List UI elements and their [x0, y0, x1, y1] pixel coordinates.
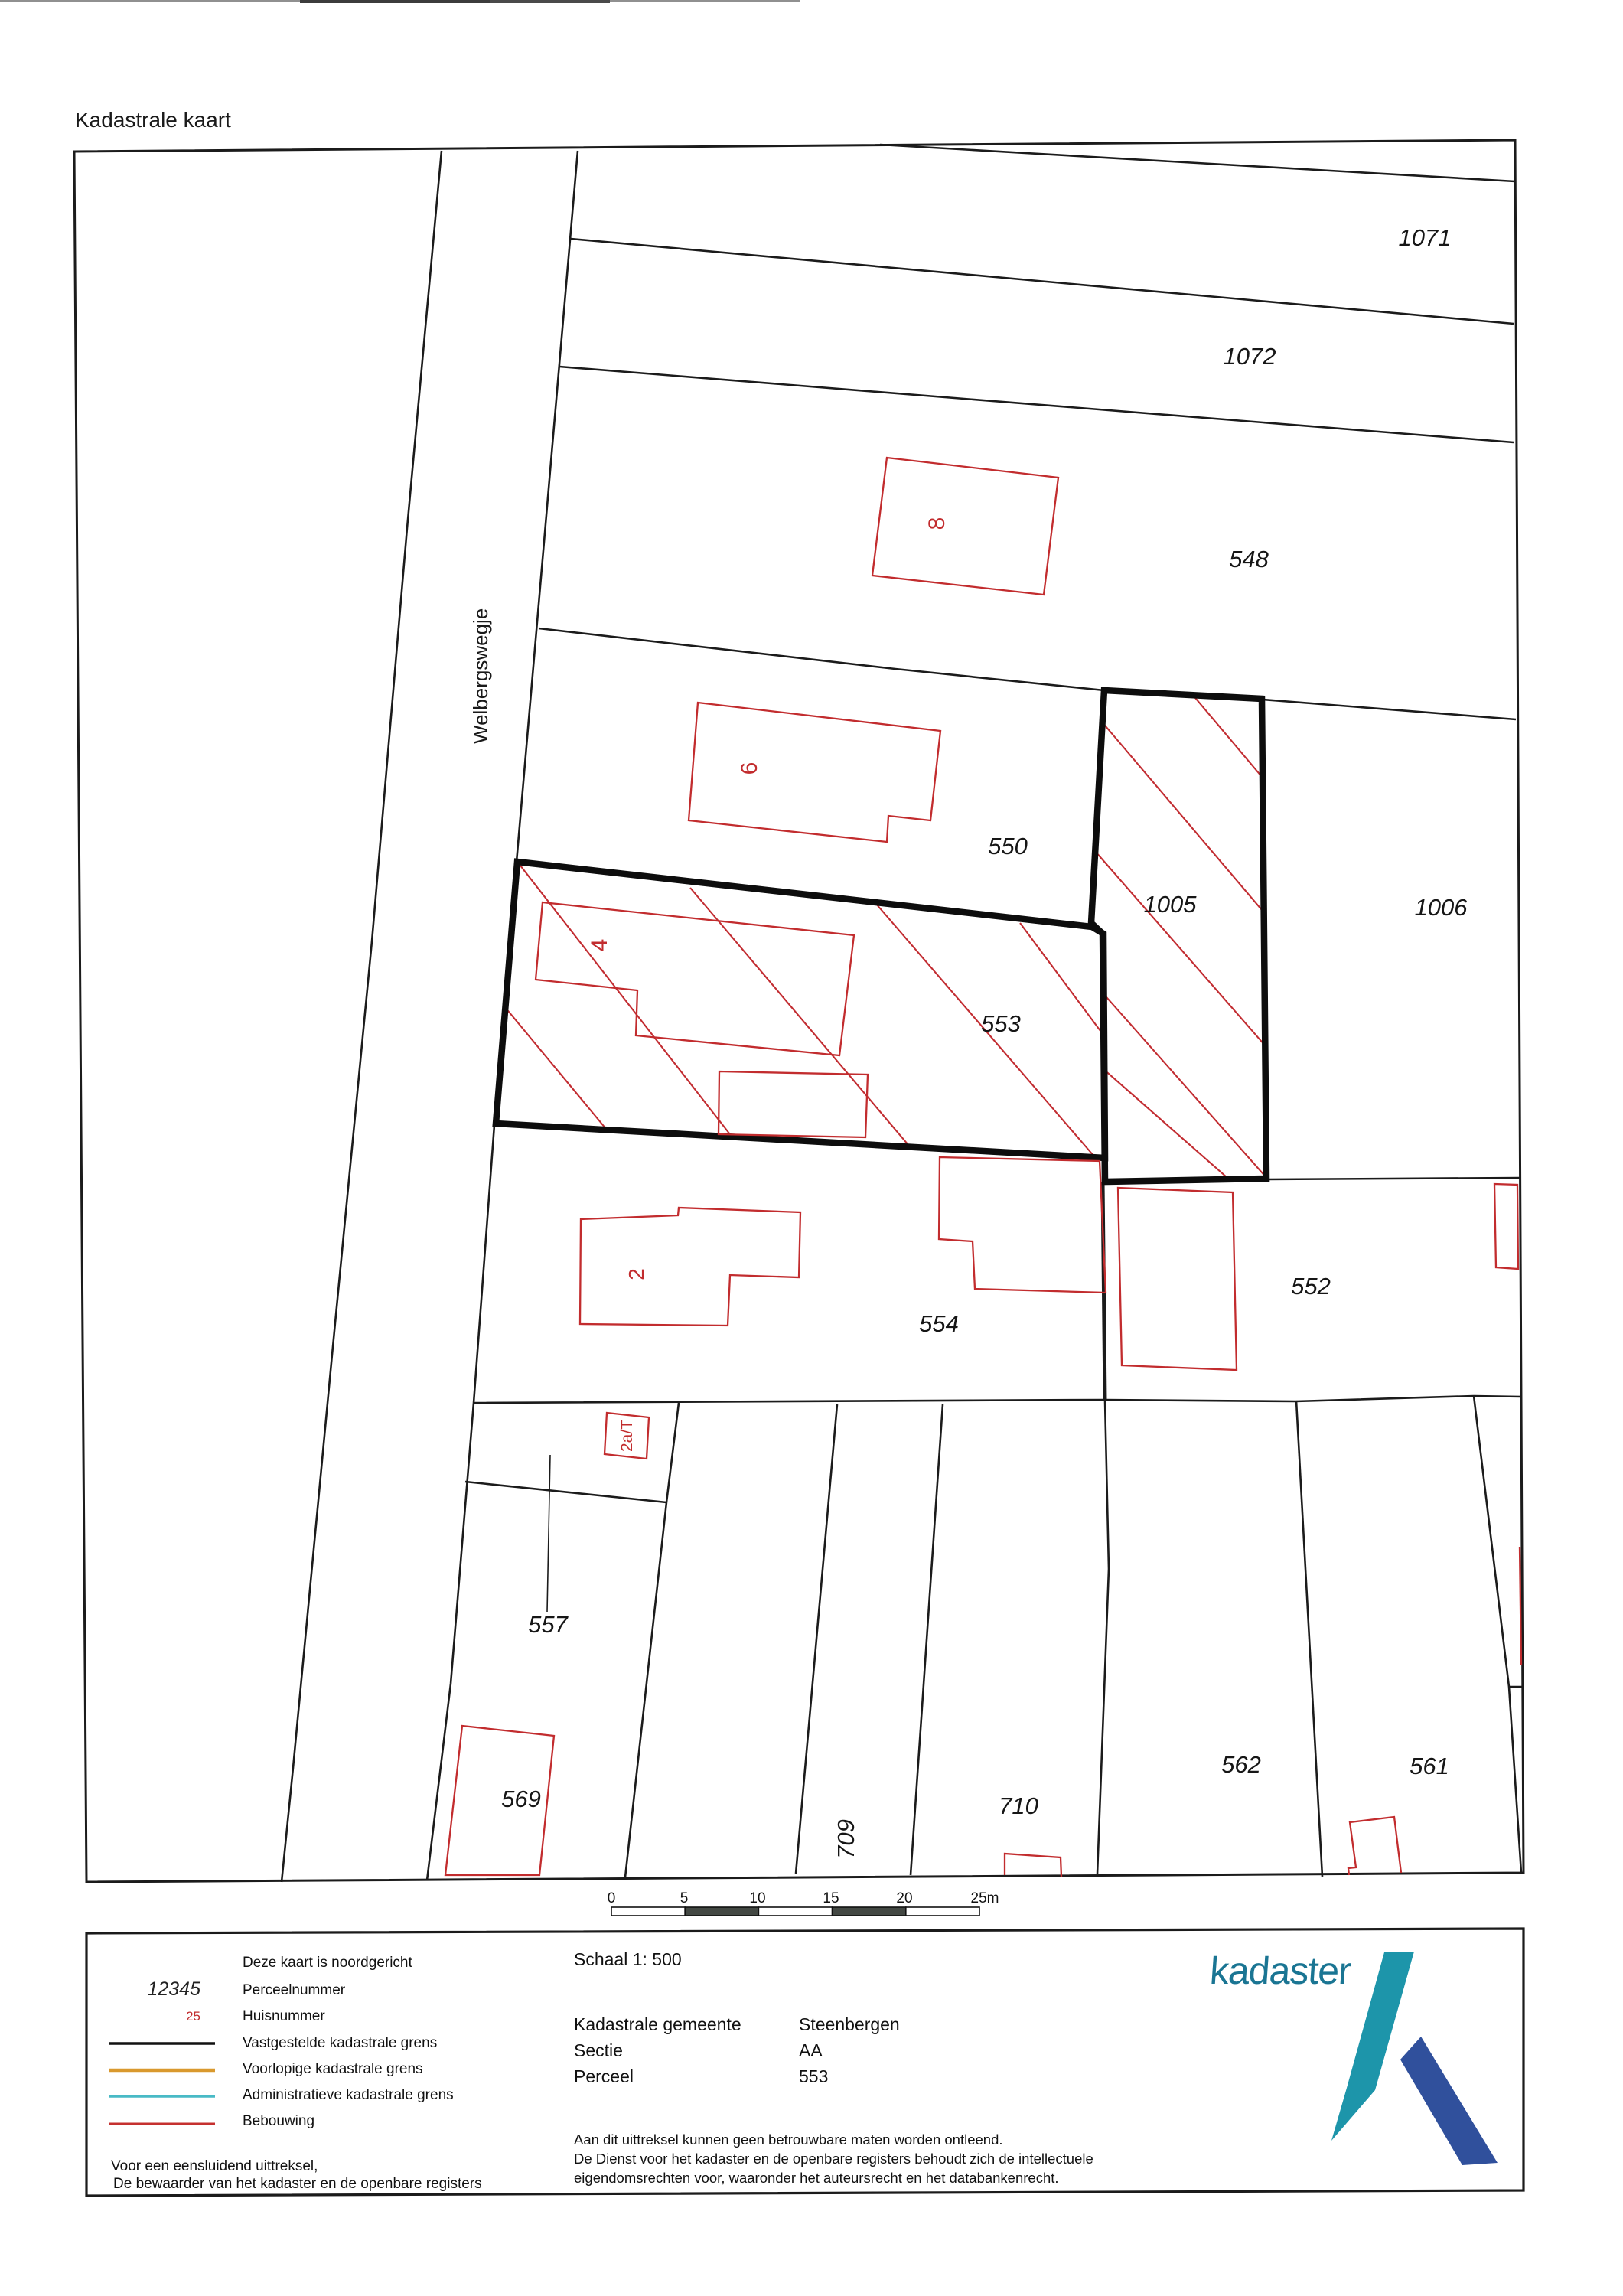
svg-text:553: 553 — [981, 1010, 1021, 1037]
svg-text:569: 569 — [501, 1786, 541, 1812]
svg-text:Kadastrale kaart: Kadastrale kaart — [75, 108, 231, 132]
svg-text:eigendomsrechten voor, waarond: eigendomsrechten voor, waaronder het aut… — [574, 2170, 1059, 2186]
svg-text:Schaal 1: 500: Schaal 1: 500 — [574, 1949, 682, 1969]
svg-text:553: 553 — [799, 2066, 828, 2086]
svg-text:De Dienst voor het kadaster en: De Dienst voor het kadaster en de openba… — [574, 2151, 1093, 2167]
svg-text:562: 562 — [1221, 1751, 1261, 1778]
svg-text:8: 8 — [924, 517, 950, 530]
svg-text:1072: 1072 — [1224, 343, 1276, 370]
svg-text:De bewaarder van het kadaster: De bewaarder van het kadaster en de open… — [113, 2176, 482, 2192]
svg-text:Sectie: Sectie — [574, 2040, 623, 2060]
svg-text:Deze kaart is noordgericht: Deze kaart is noordgericht — [243, 1955, 412, 1971]
svg-text:Voor een eensluidend uittrekse: Voor een eensluidend uittreksel, — [111, 2158, 318, 2174]
svg-text:20: 20 — [896, 1890, 912, 1906]
svg-text:Huisnummer: Huisnummer — [243, 2008, 325, 2024]
svg-text:550: 550 — [988, 833, 1028, 859]
svg-text:561: 561 — [1410, 1753, 1449, 1779]
svg-text:25: 25 — [186, 2009, 200, 2024]
svg-text:Voorlopige kadastrale grens: Voorlopige kadastrale grens — [243, 2061, 423, 2077]
svg-text:552: 552 — [1291, 1273, 1331, 1300]
svg-text:12345: 12345 — [147, 1978, 200, 2000]
svg-text:709: 709 — [833, 1819, 859, 1859]
svg-text:Bebouwing: Bebouwing — [243, 2113, 314, 2129]
svg-text:6: 6 — [737, 762, 762, 775]
svg-text:Welbergswegje: Welbergswegje — [469, 608, 492, 744]
svg-text:557: 557 — [528, 1611, 569, 1638]
svg-text:710: 710 — [999, 1792, 1038, 1819]
svg-text:5: 5 — [680, 1890, 689, 1906]
svg-text:Aan dit uittreksel kunnen geen: Aan dit uittreksel kunnen geen betrouwba… — [574, 2131, 1003, 2148]
svg-text:AA: AA — [799, 2040, 823, 2060]
svg-text:554: 554 — [919, 1310, 959, 1337]
svg-text:2: 2 — [624, 1268, 648, 1280]
svg-text:15: 15 — [823, 1890, 839, 1906]
svg-text:kadaster: kadaster — [1208, 1949, 1352, 1992]
svg-text:4: 4 — [587, 939, 612, 952]
svg-text:Steenbergen: Steenbergen — [799, 2014, 900, 2034]
svg-text:Kadastrale gemeente: Kadastrale gemeente — [574, 2014, 741, 2034]
svg-text:Vastgestelde kadastrale grens: Vastgestelde kadastrale grens — [243, 2035, 437, 2051]
svg-text:0: 0 — [608, 1890, 616, 1906]
svg-text:Perceelnummer: Perceelnummer — [243, 1982, 346, 1998]
svg-text:Administratieve kadastrale gre: Administratieve kadastrale grens — [243, 2087, 454, 2103]
svg-text:548: 548 — [1229, 546, 1269, 572]
svg-text:Perceel: Perceel — [574, 2066, 634, 2086]
svg-text:25m: 25m — [971, 1890, 999, 1906]
svg-text:1006: 1006 — [1415, 894, 1468, 921]
svg-text:1005: 1005 — [1144, 891, 1198, 918]
svg-text:1071: 1071 — [1399, 224, 1452, 251]
svg-text:2a/T: 2a/T — [618, 1420, 636, 1452]
svg-text:10: 10 — [749, 1890, 765, 1906]
